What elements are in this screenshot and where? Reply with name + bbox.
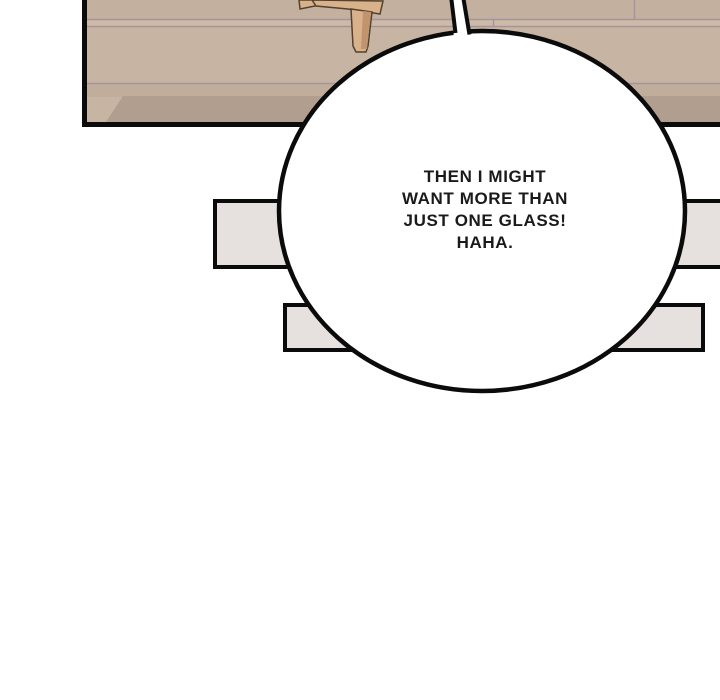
comic-page: THEN I MIGHT WANT MORE THAN JUST ONE GLA… [0,0,720,700]
speech-line: WANT MORE THAN [325,188,645,210]
speech-line: JUST ONE GLASS! [325,210,645,232]
floor-top-plank [87,0,720,19]
speech-text: THEN I MIGHT WANT MORE THAN JUST ONE GLA… [325,166,645,254]
speech-line: HAHA. [325,232,645,254]
speech-line: THEN I MIGHT [325,166,645,188]
